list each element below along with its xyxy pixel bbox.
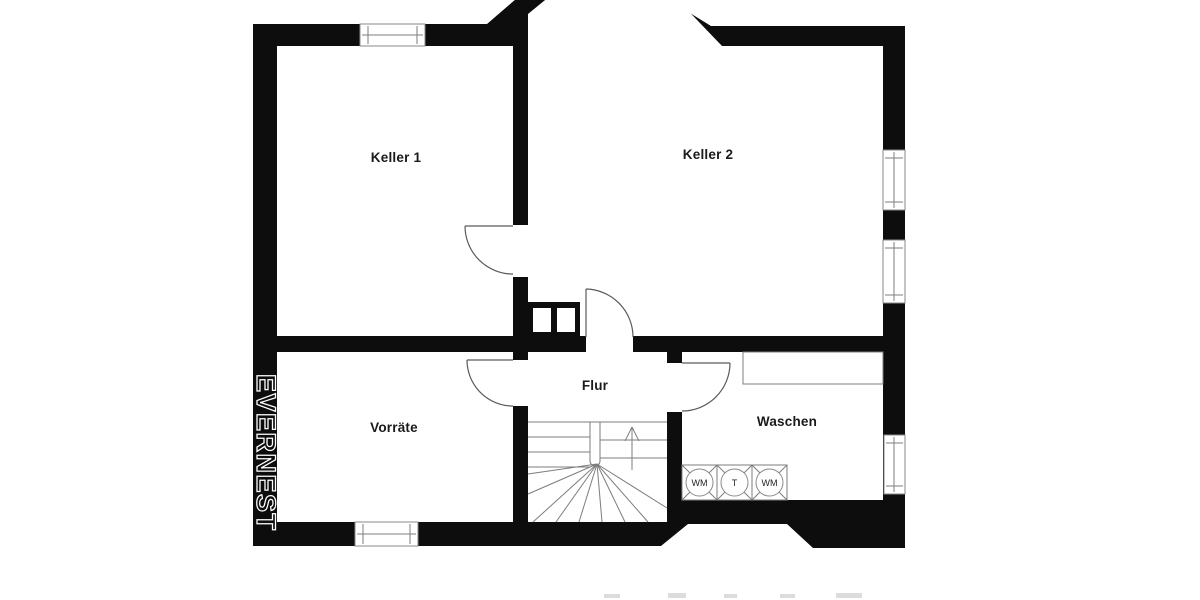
appliance-label-wm1: WM xyxy=(692,478,708,488)
door-opening-waschen xyxy=(665,363,684,412)
window-vorraete-bottom xyxy=(355,522,418,546)
room-keller1-floor xyxy=(277,46,513,336)
door-opening-keller2 xyxy=(586,334,633,354)
appliance-washing-machine-2: WM xyxy=(752,465,787,500)
chimney xyxy=(527,302,580,352)
room-label-keller-1: Keller 1 xyxy=(371,150,422,165)
room-vorraete-floor xyxy=(277,352,513,522)
floor-plan-basement: WM T WM Keller 1 Keller 2 Vorräte Flur W… xyxy=(0,0,1200,600)
appliance-dryer: T xyxy=(717,465,752,500)
window-keller2-right-lower xyxy=(883,240,905,303)
door-opening-vorraete xyxy=(511,360,530,406)
window-keller1-top xyxy=(360,24,425,46)
room-label-waschen: Waschen xyxy=(757,414,817,429)
door-opening-keller1 xyxy=(511,225,530,277)
room-label-flur: Flur xyxy=(582,378,609,393)
appliance-label-wm2: WM xyxy=(762,478,778,488)
watermark-evernest: EVERNEST xyxy=(251,374,281,532)
appliance-washing-machine-1: WM xyxy=(682,465,717,500)
room-label-vorraete: Vorräte xyxy=(370,420,418,435)
room-label-keller-2: Keller 2 xyxy=(683,147,733,162)
window-keller2-right-upper xyxy=(883,150,905,210)
room-keller2-floor xyxy=(528,0,883,336)
window-waschen-right xyxy=(884,435,905,494)
appliance-label-t: T xyxy=(732,478,738,488)
